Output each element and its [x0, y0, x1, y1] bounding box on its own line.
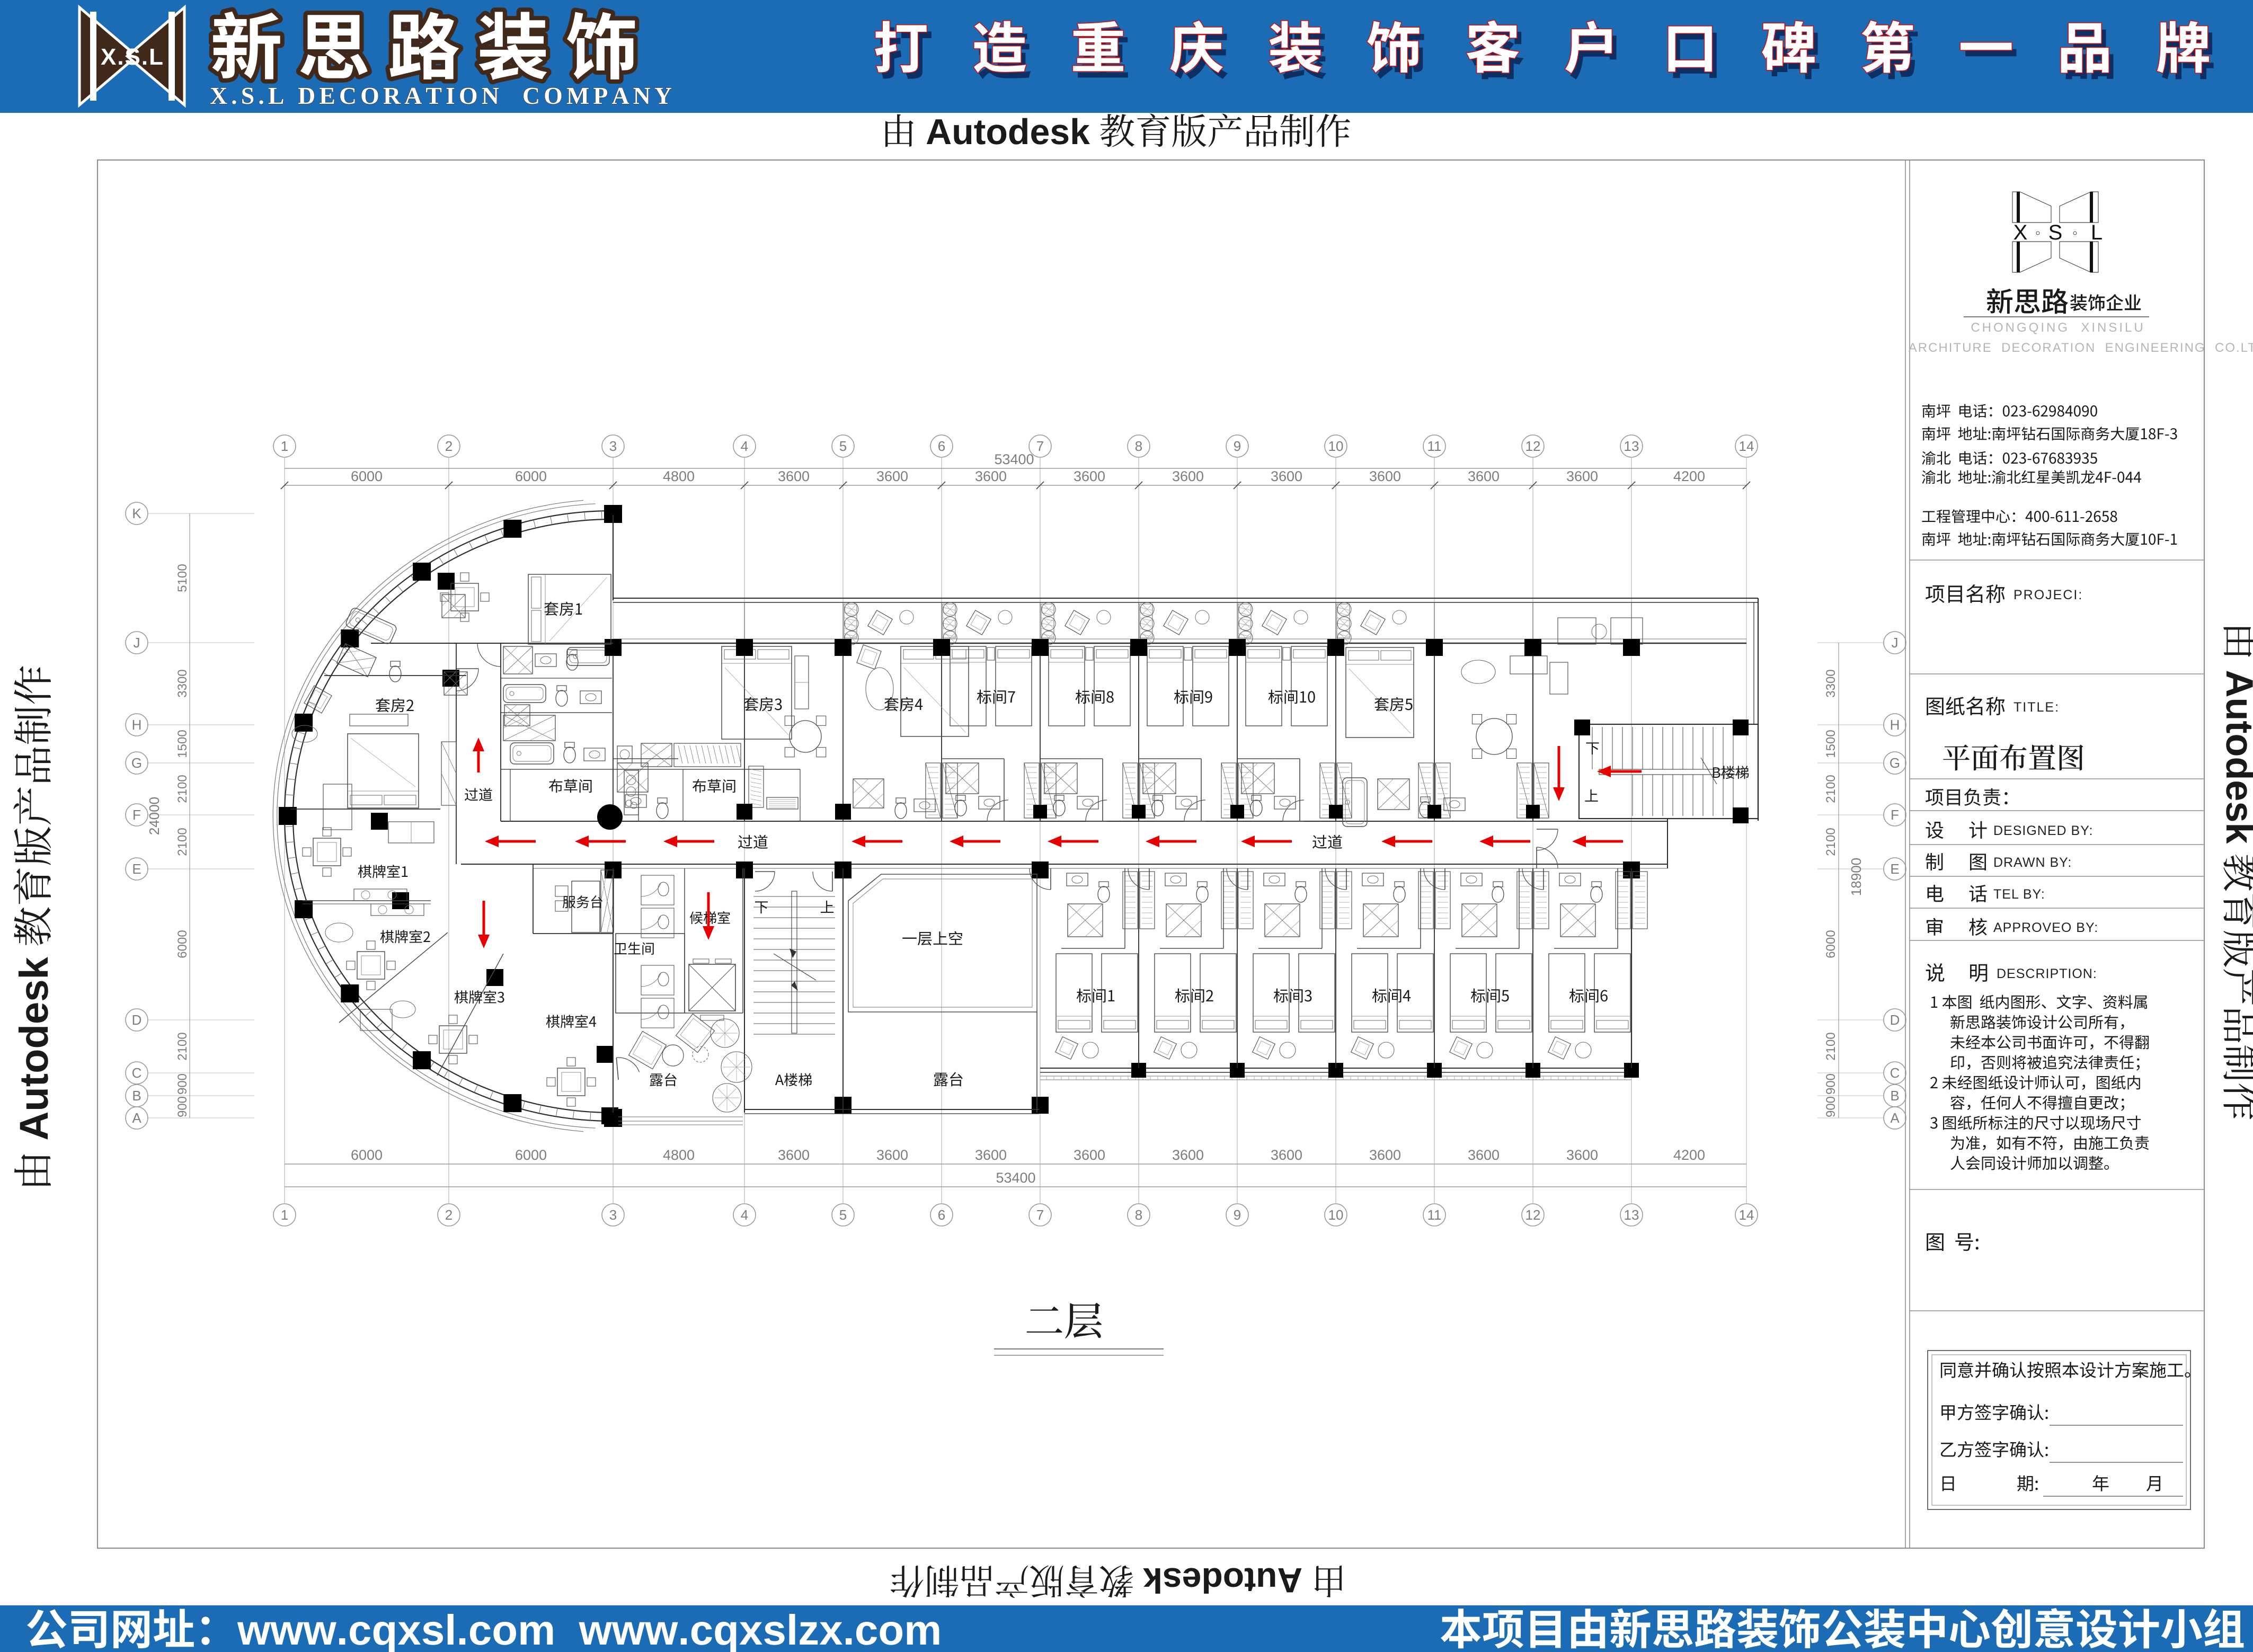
- svg-text:3600: 3600: [1369, 468, 1401, 484]
- svg-text:10: 10: [1328, 438, 1344, 454]
- svg-text:1500: 1500: [1824, 730, 1838, 758]
- svg-text:8: 8: [1135, 438, 1142, 454]
- svg-text:D: D: [1890, 1012, 1900, 1028]
- svg-text:3600: 3600: [1271, 1147, 1302, 1163]
- svg-text:3600: 3600: [1468, 1147, 1500, 1163]
- svg-text:3300: 3300: [1824, 669, 1838, 697]
- svg-text:TEL BY:: TEL BY:: [1993, 887, 2045, 902]
- svg-text:6: 6: [938, 1207, 945, 1223]
- svg-text:900: 900: [175, 1073, 190, 1095]
- svg-text:12: 12: [1525, 438, 1541, 454]
- svg-text:13: 13: [1624, 438, 1639, 454]
- svg-text:3600: 3600: [1468, 468, 1500, 484]
- svg-text:D: D: [132, 1012, 142, 1028]
- svg-text:L: L: [2091, 221, 2103, 244]
- svg-text:6000: 6000: [515, 1147, 547, 1163]
- svg-text:K: K: [132, 505, 141, 521]
- svg-text:2100: 2100: [1824, 828, 1838, 856]
- svg-text:11: 11: [1427, 1207, 1442, 1223]
- svg-text:B: B: [1890, 1088, 1899, 1104]
- svg-text:DESIGNED BY:: DESIGNED BY:: [1993, 823, 2093, 838]
- svg-text:4800: 4800: [663, 468, 695, 484]
- svg-text:3: 3: [609, 438, 617, 454]
- svg-text:53400: 53400: [994, 451, 1034, 467]
- svg-text:E: E: [132, 861, 141, 877]
- svg-text:3600: 3600: [1271, 468, 1302, 484]
- svg-text:1: 1: [281, 1207, 288, 1223]
- svg-text:2100: 2100: [1824, 775, 1838, 803]
- svg-text:5: 5: [839, 438, 847, 454]
- svg-text:4: 4: [741, 1207, 748, 1223]
- svg-text:6: 6: [938, 438, 945, 454]
- svg-text:4: 4: [741, 438, 748, 454]
- svg-text:11: 11: [1427, 438, 1442, 454]
- svg-text:3600: 3600: [1566, 468, 1598, 484]
- svg-text:ARCHITURE DECORATION ENGINEE: ARCHITURE DECORATION ENGINEERING CO.LTD: [1909, 341, 2253, 355]
- svg-text:3: 3: [609, 1207, 617, 1223]
- svg-text:18900: 18900: [1848, 858, 1864, 896]
- svg-text:3600: 3600: [975, 1147, 1007, 1163]
- svg-text:APPROVEO BY:: APPROVEO BY:: [1993, 920, 2098, 935]
- svg-text:H: H: [132, 717, 142, 733]
- svg-text:2: 2: [445, 1207, 453, 1223]
- svg-text:2100: 2100: [175, 828, 190, 856]
- svg-text:24000: 24000: [146, 797, 162, 835]
- svg-text:53400: 53400: [996, 1170, 1035, 1186]
- svg-text:F: F: [1891, 807, 1899, 823]
- svg-text:6000: 6000: [515, 468, 547, 484]
- svg-text:3600: 3600: [778, 468, 810, 484]
- svg-text:3600: 3600: [1074, 468, 1105, 484]
- svg-text:3600: 3600: [1074, 1147, 1105, 1163]
- svg-text:3600: 3600: [1566, 1147, 1598, 1163]
- svg-text:3600: 3600: [1172, 468, 1204, 484]
- svg-text:5100: 5100: [175, 564, 190, 592]
- svg-text:5: 5: [839, 1207, 847, 1223]
- svg-text:3600: 3600: [876, 468, 908, 484]
- svg-text:3600: 3600: [975, 468, 1007, 484]
- svg-text:PROJECI:: PROJECI:: [2013, 588, 2083, 602]
- svg-text:4200: 4200: [1673, 468, 1705, 484]
- svg-text:G: G: [131, 755, 142, 771]
- svg-text:DRAWN BY:: DRAWN BY:: [1993, 855, 2072, 870]
- svg-text:6000: 6000: [175, 930, 190, 958]
- svg-text:12: 12: [1525, 1207, 1541, 1223]
- svg-text:S: S: [2048, 221, 2063, 244]
- svg-text:7: 7: [1036, 438, 1044, 454]
- svg-text:X.S.L: X.S.L: [101, 44, 164, 70]
- svg-text:CHONGQING XINSILU: CHONGQING XINSILU: [1971, 321, 2145, 335]
- svg-text:DESCRIPTION:: DESCRIPTION:: [1997, 966, 2097, 981]
- svg-text:A: A: [132, 1110, 141, 1126]
- svg-text:E: E: [1890, 861, 1899, 877]
- svg-text:14: 14: [1739, 438, 1754, 454]
- svg-text:2100: 2100: [175, 775, 190, 803]
- svg-text:TITLE:: TITLE:: [2013, 700, 2060, 715]
- svg-text:2100: 2100: [175, 1032, 190, 1060]
- svg-text:1: 1: [281, 438, 288, 454]
- svg-text:X: X: [2013, 221, 2028, 244]
- svg-text:6000: 6000: [1824, 930, 1838, 958]
- svg-text:9: 9: [1234, 438, 1241, 454]
- svg-text:J: J: [1892, 635, 1899, 651]
- svg-text:7: 7: [1036, 1207, 1044, 1223]
- svg-text:900: 900: [175, 1096, 190, 1117]
- svg-text:900: 900: [1824, 1096, 1838, 1117]
- svg-text:14: 14: [1739, 1207, 1754, 1223]
- svg-text:3600: 3600: [1369, 1147, 1401, 1163]
- svg-text:2100: 2100: [1824, 1032, 1838, 1060]
- svg-text:3600: 3600: [778, 1147, 810, 1163]
- svg-text:4200: 4200: [1673, 1147, 1705, 1163]
- svg-text:A: A: [1890, 1110, 1900, 1126]
- svg-text:13: 13: [1624, 1207, 1639, 1223]
- svg-text:4800: 4800: [663, 1147, 695, 1163]
- svg-text:9: 9: [1234, 1207, 1241, 1223]
- svg-text:C: C: [132, 1065, 142, 1081]
- svg-text:3300: 3300: [175, 669, 190, 697]
- svg-text:H: H: [1890, 717, 1900, 733]
- svg-text:1500: 1500: [175, 730, 190, 758]
- svg-text:J: J: [134, 635, 140, 651]
- svg-text:3600: 3600: [876, 1147, 908, 1163]
- svg-text:F: F: [132, 807, 141, 823]
- svg-text:B: B: [132, 1088, 141, 1104]
- svg-text:2: 2: [445, 438, 453, 454]
- svg-text:C: C: [1890, 1065, 1900, 1081]
- svg-text:6000: 6000: [351, 468, 383, 484]
- svg-text:G: G: [1890, 755, 1900, 771]
- svg-text:3600: 3600: [1172, 1147, 1204, 1163]
- svg-text:900: 900: [1824, 1073, 1838, 1095]
- svg-text:8: 8: [1135, 1207, 1142, 1223]
- svg-text:10: 10: [1328, 1207, 1344, 1223]
- svg-text:6000: 6000: [351, 1147, 383, 1163]
